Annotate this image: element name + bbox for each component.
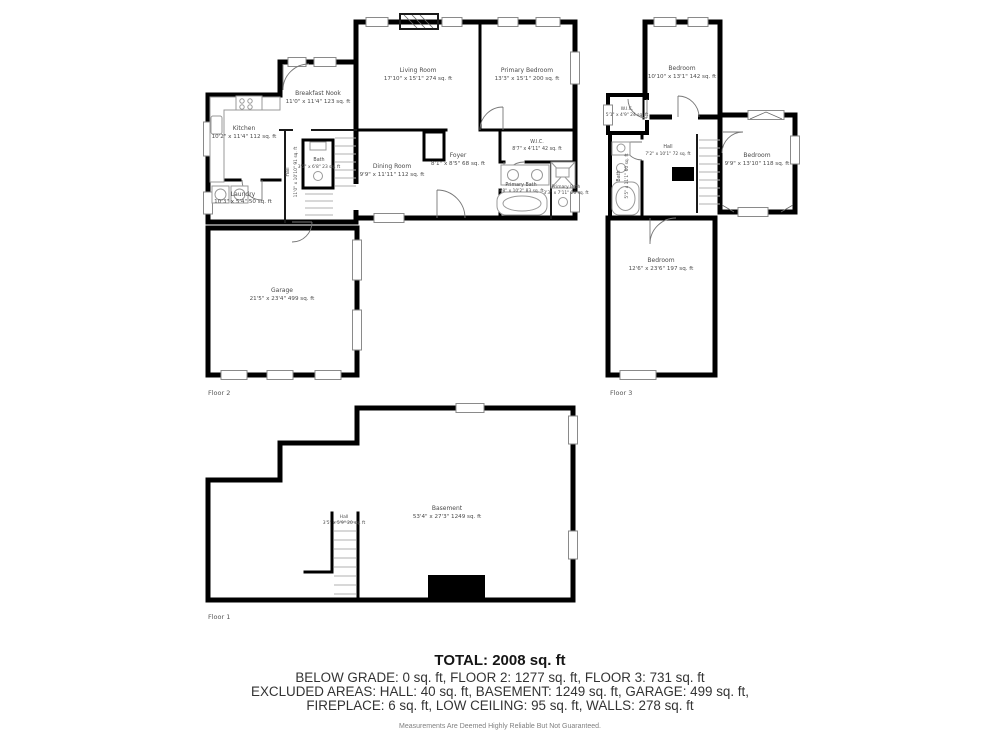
room-name: Bath <box>616 170 622 181</box>
floor1-plan: Basement 53'4" x 27'3" 1249 sq. ft Hall … <box>202 402 586 621</box>
floor-plan-page: { "floors": [ { "label": "Floor 2", "roo… <box>0 0 1000 750</box>
floor-plan-canvas: Living Room 17'10" x 15'1" 274 sq. ft Pr… <box>0 0 1000 750</box>
room-name: Hall <box>340 514 348 520</box>
small-bath-toilet <box>559 198 568 207</box>
room-dims: 53'4" x 27'3" 1249 sq. ft <box>413 514 482 520</box>
room-dims: 9'8" x 10'2" 83 sq. ft <box>498 188 544 194</box>
small-bath-sink <box>556 168 569 177</box>
room-name: W.I.C. <box>621 106 633 112</box>
room-name: Hall <box>285 167 291 176</box>
fireplace-footing <box>428 575 485 600</box>
floor2-plan: Living Room 17'10" x 15'1" 274 sq. ft Pr… <box>202 8 589 397</box>
room-dims: 11'0" x 11'4" 123 sq. ft <box>286 99 352 105</box>
room-dims: 10'3" x 5'4" 50 sq. ft <box>214 199 272 205</box>
room-dims: 12'6" x 23'6" 197 sq. ft <box>629 266 695 272</box>
room-name: Primary Bath <box>505 182 536 188</box>
floor2-caption: Floor 2 <box>208 389 230 397</box>
room-name: Bedroom <box>743 152 770 159</box>
room-name: Dining Room <box>373 163 412 170</box>
room-name: Kitchen <box>233 125 256 132</box>
room-name: Breakfast Nook <box>295 90 341 97</box>
room-name: Primary Bedroom <box>501 67 553 74</box>
bath-sink <box>310 142 326 150</box>
room-name: Primary Bath <box>552 184 581 190</box>
room-name: Laundry <box>231 191 256 198</box>
bath-toilet <box>314 172 323 181</box>
total-area: TOTAL: 2008 sq. ft <box>0 652 1000 669</box>
room-name: Garage <box>271 287 293 294</box>
room-name: Bedroom <box>647 257 674 264</box>
room-name: Foyer <box>450 152 467 159</box>
room-dims: 21'5" x 23'4" 499 sq. ft <box>250 296 316 302</box>
room-dims: 9'9" x 11'11" 112 sq. ft <box>360 172 426 178</box>
floor3-plan: Bedroom 10'10" x 13'1" 142 sq. ft W.I.C.… <box>600 8 804 397</box>
room-dims: 17'10" x 15'1" 274 sq. ft <box>384 76 453 82</box>
room-name: Hall <box>663 144 672 150</box>
room-name: Living Room <box>400 67 437 74</box>
room-dims: 11'0" x 10'10" 91 sq. ft <box>293 146 299 197</box>
room-dims: 10'2" x 11'4" 112 sq. ft <box>212 134 278 140</box>
room-name: W.I.C. <box>530 139 544 145</box>
room-dims: 10'10" x 13'1" 142 sq. ft <box>648 74 717 80</box>
disclaimer-text: Measurements Are Deemed Highly Reliable … <box>0 723 1000 730</box>
excluded-areas-line-1: EXCLUDED AREAS: HALL: 40 sq. ft, BASEMEN… <box>0 685 1000 699</box>
excluded-areas-line-2: FIREPLACE: 6 sq. ft, LOW CEILING: 95 sq.… <box>0 699 1000 713</box>
floor-areas-line: BELOW GRADE: 0 sq. ft, FLOOR 2: 1277 sq.… <box>0 671 1000 685</box>
floor1-background <box>202 402 586 618</box>
room-dims: 13'3" x 15'1" 200 sq. ft <box>495 76 561 82</box>
room-dims: 5'5" x 11'1" 60 sq. ft <box>624 153 630 199</box>
room-dims: 3'3" x 7'11" 26 sq. ft <box>543 190 589 196</box>
floor1-caption: Floor 1 <box>208 613 230 621</box>
room-dims: 3'5" x 6'8" 23 sq. ft <box>298 164 341 170</box>
room-name: Bath <box>313 157 324 163</box>
room-dims: 8'1" x 8'5" 68 sq. ft <box>431 161 486 167</box>
room-dims: 3'5" x 5'9" 20 sq. ft <box>323 520 366 526</box>
room-name: Basement <box>432 505 463 512</box>
room-dims: 8'7" x 4'11" 42 sq. ft <box>512 146 562 152</box>
room-name: Bedroom <box>668 65 695 72</box>
kitchen-sink <box>211 116 222 134</box>
room-dims: 9'9" x 13'10" 118 sq. ft <box>725 161 791 167</box>
room-dims: 7'2" x 10'1" 72 sq. ft <box>645 151 691 157</box>
floor3-caption: Floor 3 <box>610 389 632 397</box>
area-summary: TOTAL: 2008 sq. ft BELOW GRADE: 0 sq. ft… <box>0 652 1000 730</box>
room-dims: 5'1" x 4'9" 24 sq. ft <box>606 112 649 118</box>
